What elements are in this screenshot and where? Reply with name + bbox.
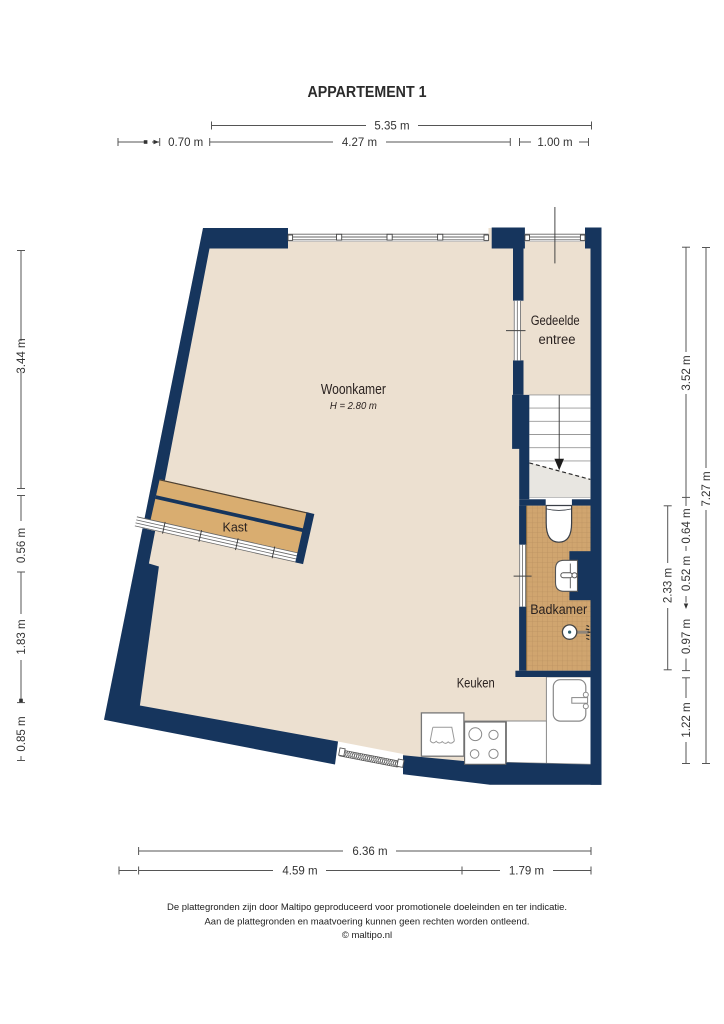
svg-text:3.44 m: 3.44 m: [16, 338, 28, 373]
svg-text:0.70 m: 0.70 m: [168, 137, 203, 149]
svg-text:5.35 m: 5.35 m: [374, 121, 409, 133]
svg-text:entree: entree: [539, 332, 576, 347]
svg-text:2.33 m: 2.33 m: [663, 568, 675, 603]
svg-text:7.27 m: 7.27 m: [701, 471, 713, 506]
svg-text:APPARTEMENT 1: APPARTEMENT 1: [308, 84, 427, 101]
svg-text:0.56 m: 0.56 m: [16, 528, 28, 563]
svg-text:Aan de plattegronden en maatvo: Aan de plattegronden en maatvoering kunn…: [205, 917, 530, 928]
svg-text:0.85 m: 0.85 m: [16, 716, 28, 751]
svg-text:Badkamer: Badkamer: [530, 602, 587, 617]
svg-text:1.79 m: 1.79 m: [509, 866, 544, 878]
svg-text:1.22 m: 1.22 m: [681, 702, 693, 737]
svg-text:0.64 m: 0.64 m: [681, 508, 693, 543]
svg-text:Gedeelde: Gedeelde: [531, 313, 580, 328]
svg-text:Keuken: Keuken: [457, 676, 495, 691]
svg-text:H = 2.80 m: H = 2.80 m: [330, 400, 377, 412]
svg-text:0.97 m: 0.97 m: [681, 619, 693, 654]
svg-text:1.00 m: 1.00 m: [537, 137, 572, 149]
svg-text:4.27 m: 4.27 m: [342, 137, 377, 149]
svg-text:6.36 m: 6.36 m: [352, 846, 387, 858]
svg-text:De plattegronden zijn door Mal: De plattegronden zijn door Maltipo gepro…: [167, 902, 567, 913]
svg-text:Woonkamer: Woonkamer: [321, 382, 386, 398]
svg-text:Kast: Kast: [223, 520, 248, 535]
svg-text:0.52 m: 0.52 m: [681, 556, 693, 591]
svg-text:4.59 m: 4.59 m: [282, 866, 317, 878]
svg-text:3.52 m: 3.52 m: [681, 355, 693, 390]
svg-text:1.83 m: 1.83 m: [16, 619, 28, 654]
svg-text:© maltipo.nl: © maltipo.nl: [342, 930, 392, 941]
